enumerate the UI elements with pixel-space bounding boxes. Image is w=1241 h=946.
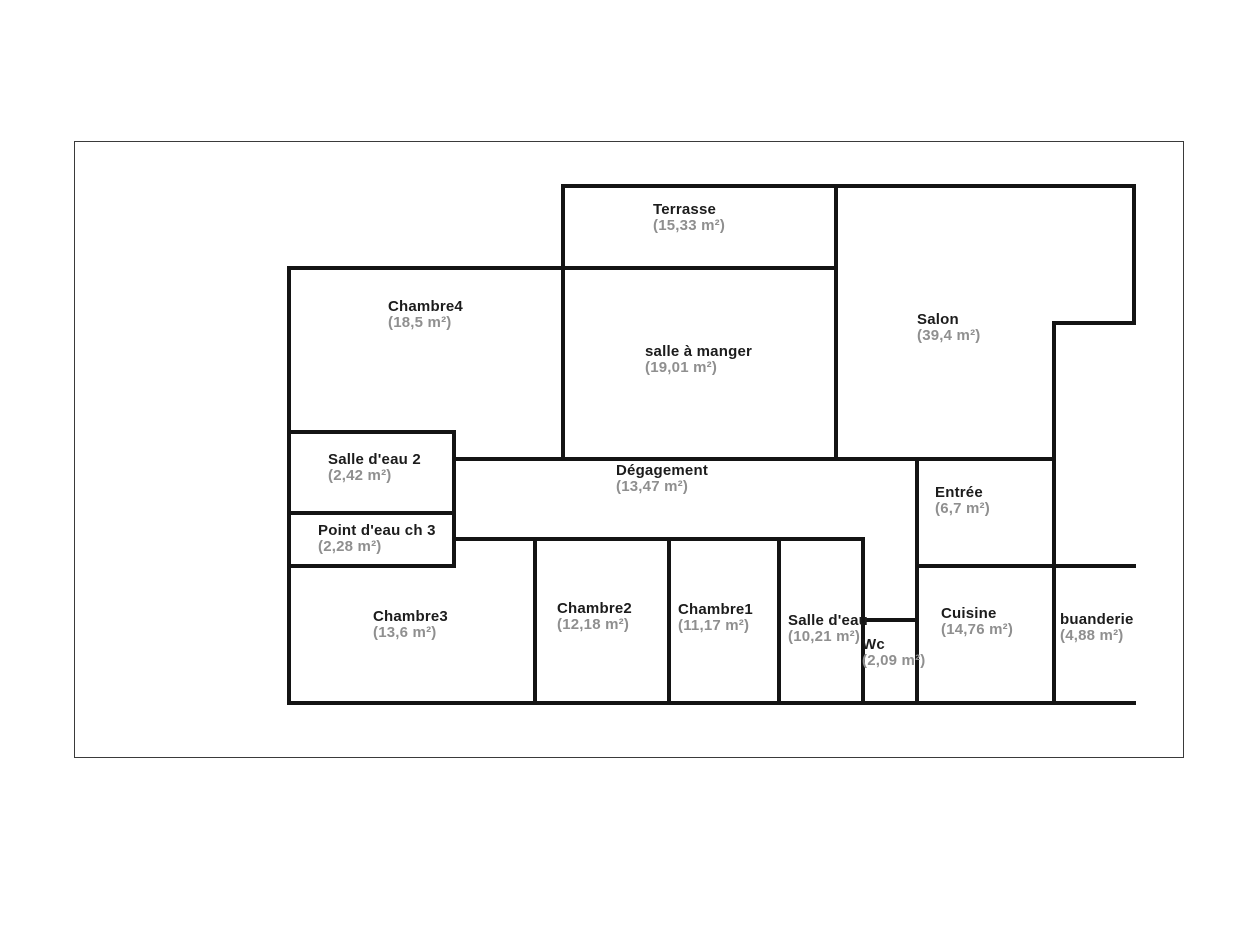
floor-plan-canvas: Terrasse (15,33 m²) Chambre4 (18,5 m²) s… bbox=[0, 0, 1241, 946]
room-name-buanderie: buanderie bbox=[1060, 612, 1133, 628]
wall-entree-bottom-cuisine-top bbox=[915, 564, 1136, 568]
room-name-chambre3: Chambre3 bbox=[373, 609, 448, 625]
room-name-salle-a-manger: salle à manger bbox=[645, 344, 752, 360]
room-name-terrasse: Terrasse bbox=[653, 202, 725, 218]
room-label-chambre2: Chambre2 (12,18 m²) bbox=[557, 601, 632, 633]
wall-degagement-bottom bbox=[452, 537, 865, 541]
wall-terrasse-left-chambre4-divider bbox=[561, 184, 565, 461]
wall-left bbox=[287, 266, 291, 705]
room-label-terrasse: Terrasse (15,33 m²) bbox=[653, 202, 725, 234]
wall-chambre2-chambre1-divider bbox=[667, 537, 671, 705]
room-label-chambre1: Chambre1 (11,17 m²) bbox=[678, 602, 753, 634]
plan-outer-frame bbox=[74, 141, 1184, 758]
room-label-point-deau-ch-3: Point d'eau ch 3 (2,28 m²) bbox=[318, 523, 436, 555]
room-area-point-deau-ch-3: (2,28 m²) bbox=[318, 539, 436, 555]
room-area-chambre1: (11,17 m²) bbox=[678, 618, 753, 634]
room-name-salle-deau-2: Salle d'eau 2 bbox=[328, 452, 421, 468]
room-name-chambre1: Chambre1 bbox=[678, 602, 753, 618]
room-area-cuisine: (14,76 m²) bbox=[941, 622, 1013, 638]
room-label-salle-a-manger: salle à manger (19,01 m²) bbox=[645, 344, 752, 376]
room-label-cuisine: Cuisine (14,76 m²) bbox=[941, 606, 1013, 638]
room-label-salon: Salon (39,4 m²) bbox=[917, 312, 981, 344]
wall-wc-top bbox=[861, 618, 919, 622]
room-name-point-deau-ch-3: Point d'eau ch 3 bbox=[318, 523, 436, 539]
wall-top-terrasse-salon bbox=[561, 184, 1136, 188]
room-name-entree: Entrée bbox=[935, 485, 990, 501]
wall-salle-deau2-right bbox=[452, 430, 456, 568]
wall-salle-deau2-top bbox=[287, 430, 456, 434]
room-label-chambre3: Chambre3 (13,6 m²) bbox=[373, 609, 448, 641]
room-area-entree: (6,7 m²) bbox=[935, 501, 990, 517]
room-area-salle-deau: (10,21 m²) bbox=[788, 629, 868, 645]
room-area-chambre3: (13,6 m²) bbox=[373, 625, 448, 641]
room-name-cuisine: Cuisine bbox=[941, 606, 1013, 622]
wall-chambre1-salle-deau-divider bbox=[777, 537, 781, 705]
wall-notch-entree-right bbox=[1052, 321, 1056, 705]
room-label-degagement: Dégagement (13,47 m²) bbox=[616, 463, 708, 495]
room-area-salon: (39,4 m²) bbox=[917, 328, 981, 344]
wall-salle-deau2-point-deau-divider bbox=[287, 511, 456, 515]
room-label-salle-deau: Salle d'eau (10,21 m²) bbox=[788, 613, 868, 645]
wall-point-deau-bottom bbox=[287, 564, 456, 568]
room-label-entree: Entrée (6,7 m²) bbox=[935, 485, 990, 517]
room-name-salon: Salon bbox=[917, 312, 981, 328]
room-label-buanderie: buanderie (4,88 m²) bbox=[1060, 612, 1133, 644]
room-area-terrasse: (15,33 m²) bbox=[653, 218, 725, 234]
room-name-salle-deau: Salle d'eau bbox=[788, 613, 868, 629]
room-area-chambre4: (18,5 m²) bbox=[388, 315, 463, 331]
room-area-chambre2: (12,18 m²) bbox=[557, 617, 632, 633]
room-name-chambre2: Chambre2 bbox=[557, 601, 632, 617]
room-area-wc: (2,09 m²) bbox=[862, 653, 926, 669]
wall-salle-a-manger-salon-divider bbox=[834, 184, 838, 461]
room-area-salle-deau-2: (2,42 m²) bbox=[328, 468, 421, 484]
room-label-chambre4: Chambre4 (18,5 m²) bbox=[388, 299, 463, 331]
wall-salon-notch-top bbox=[1052, 321, 1136, 325]
room-name-degagement: Dégagement bbox=[616, 463, 708, 479]
room-area-buanderie: (4,88 m²) bbox=[1060, 628, 1133, 644]
wall-chambre3-chambre2-divider bbox=[533, 537, 537, 705]
room-name-wc: Wc bbox=[862, 637, 926, 653]
room-area-degagement: (13,47 m²) bbox=[616, 479, 708, 495]
room-name-chambre4: Chambre4 bbox=[388, 299, 463, 315]
room-area-salle-a-manger: (19,01 m²) bbox=[645, 360, 752, 376]
room-label-wc: Wc (2,09 m²) bbox=[862, 637, 926, 669]
room-label-salle-deau-2: Salle d'eau 2 (2,42 m²) bbox=[328, 452, 421, 484]
wall-degagement-top bbox=[452, 457, 1056, 461]
wall-right-outer bbox=[1132, 184, 1136, 325]
wall-bottom bbox=[287, 701, 1136, 705]
